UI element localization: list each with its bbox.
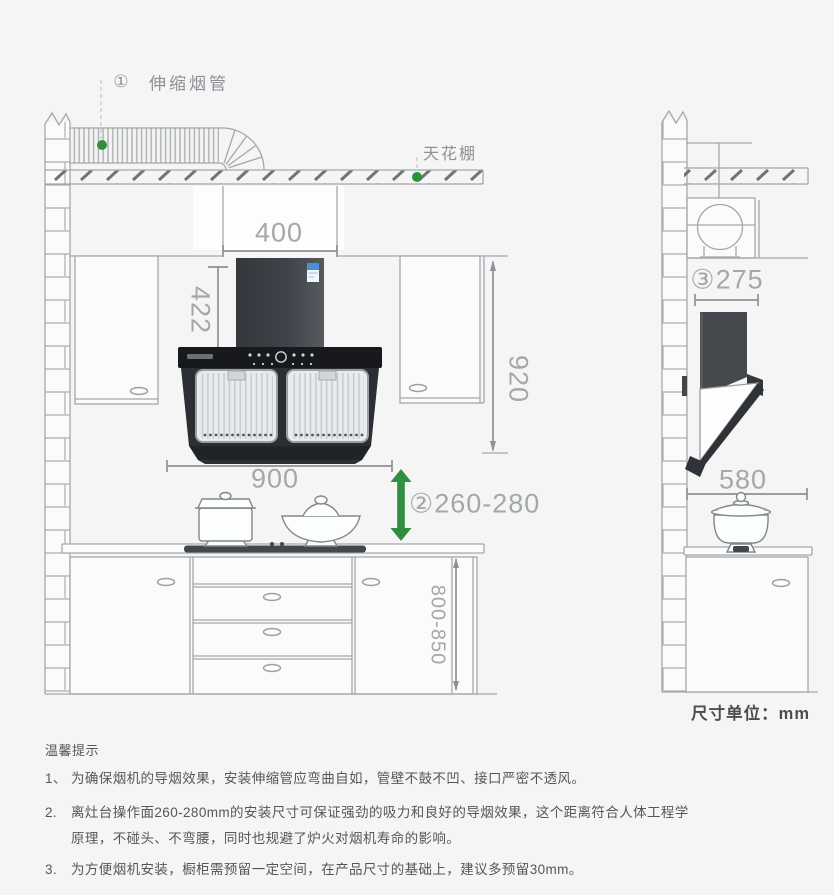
hood-side-view — [682, 312, 764, 477]
hood-brand-logo — [187, 354, 213, 359]
hood-filter-left — [196, 370, 277, 442]
upper-cabinet-left — [75, 256, 158, 404]
dim-flue-width: 400 — [255, 218, 303, 249]
tip-1-number: 1、 — [45, 767, 71, 787]
base-cabinet-left — [70, 557, 477, 694]
dim-275-lines — [695, 294, 758, 306]
hood-filter-right — [287, 370, 368, 442]
dim-hood-to-cooktop-value: 260-280 — [434, 489, 540, 519]
base-cabinet-right — [686, 557, 808, 692]
wall-bracket — [682, 376, 687, 396]
hood-installation-diagram: ① 伸缩烟管 天花棚 400 422 920 900 ②260-280 ③275… — [0, 0, 834, 895]
pipe-callout-number: ① — [113, 72, 128, 92]
ceiling-marker-dot-icon — [412, 172, 422, 182]
hood-chimney — [236, 258, 324, 349]
wok-pan — [282, 496, 360, 542]
tip-item-2-line-2: 原理，不碰头、不弯腰，同时也规避了炉火对烟机寿命的影响。 — [71, 827, 460, 847]
upper-cabinet-right — [400, 256, 484, 403]
dim-hood-depth: 580 — [719, 465, 767, 496]
unit-note: 尺寸单位：mm — [660, 700, 810, 724]
dim-hood-to-cooktop-num: ② — [409, 489, 434, 519]
dim-outlet-depth-value: 275 — [716, 265, 764, 295]
stock-pot — [195, 493, 256, 542]
pipe-marker-dot-icon — [97, 140, 107, 150]
counter-right — [684, 493, 812, 556]
tip-item-2-line-1: 2.离灶台操作面260-280mm的安装尺寸可保证强劲的吸力和良好的导烟效果，这… — [45, 801, 689, 821]
dim-outlet-depth-num: ③ — [690, 265, 715, 295]
pipe-callout-label: 伸缩烟管 — [149, 70, 229, 95]
tip-2-number: 2. — [45, 805, 71, 820]
left-wall — [45, 108, 70, 694]
dim-base-cabinet-height: 800-850 — [426, 585, 449, 665]
dim-upper-height: 920 — [503, 355, 534, 403]
tip-3-text: 为方便烟机安装，橱柜需预留一定空间，在产品尺寸的基础上，建议多预留30mm。 — [71, 862, 583, 877]
tip-item-1: 1、为确保烟机的导烟效果，安装伸缩管应弯曲自如，管壁不鼓不凹、接口严密不透风。 — [45, 767, 585, 787]
range-hood — [178, 347, 382, 464]
tip-3-number: 3. — [45, 862, 71, 877]
ceiling-right — [684, 168, 808, 184]
duct-outlet-side — [686, 143, 808, 258]
dim-hood-to-cooktop: ②260-280 — [409, 489, 540, 520]
tips-title: 温馨提示 — [45, 740, 99, 759]
round-pot — [712, 493, 771, 544]
tip-1-text: 为确保烟机的导烟效果，安装伸缩管应弯曲自如，管壁不鼓不凹、接口严密不透风。 — [71, 771, 585, 786]
ceiling-label: 天花棚 — [423, 140, 477, 164]
tip-2-text-line-1: 离灶台操作面260-280mm的安装尺寸可保证强劲的吸力和良好的导烟效果，这个距… — [71, 805, 689, 820]
dim-outlet-depth: ③275 — [690, 265, 763, 296]
dim-chimney-height: 422 — [185, 286, 216, 334]
tip-item-3: 3.为方便烟机安装，橱柜需预留一定空间，在产品尺寸的基础上，建议多预留30mm。 — [45, 858, 583, 878]
diagram-linework — [0, 0, 834, 730]
tip-2-text-line-2: 原理，不碰头、不弯腰，同时也规避了炉火对烟机寿命的影响。 — [71, 831, 460, 846]
dim-hood-width: 900 — [251, 464, 299, 495]
right-wall — [662, 106, 687, 692]
energy-label — [307, 263, 319, 282]
